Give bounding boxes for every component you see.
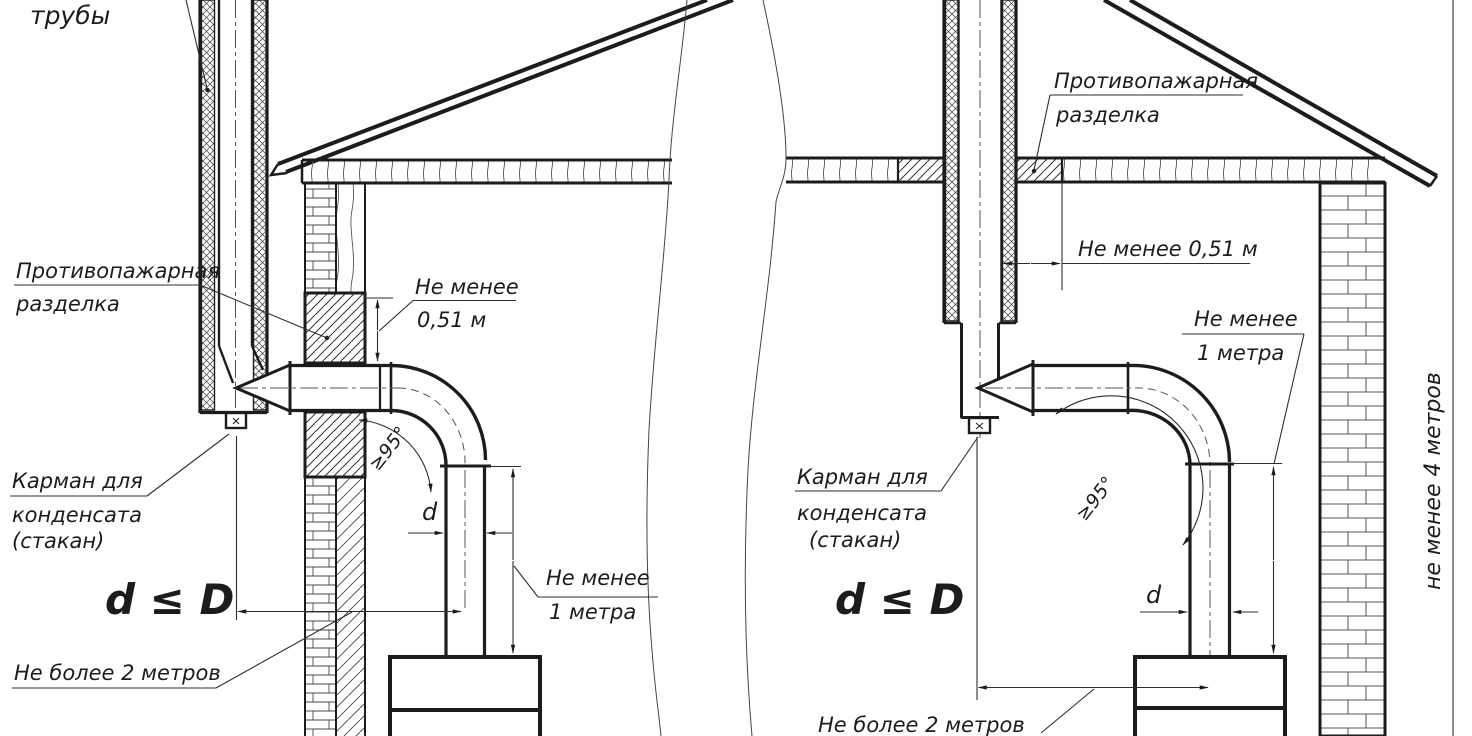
left-diagram: трубы Противопажарная разделка Не менее … (10, 0, 733, 736)
left-fire-break-block (305, 293, 365, 363)
left-min-height-label-2: 0,51 м (417, 308, 486, 332)
right-pocket-label-1: Карман для (797, 465, 928, 489)
right-min-vertical-label-1: Не менее (1194, 307, 1298, 331)
left-roof (271, 0, 733, 175)
left-min-height-label-1: Не менее (415, 275, 519, 299)
left-ceiling (302, 160, 672, 183)
right-max-run-label: Не более 2 метров (818, 713, 1025, 736)
right-wall (1320, 183, 1385, 736)
right-diameter-label: d (1146, 581, 1162, 609)
right-fire-break-block-left (898, 158, 944, 182)
left-min-vertical-label-1: Не менее (546, 566, 650, 590)
right-diagram: Противопажарная разделка Не менее 0,51 м… (745, 0, 1453, 736)
right-condensate-pocket (969, 418, 990, 433)
left-fire-break-label-2: разделка (15, 292, 120, 316)
left-pipe-insulation-label: трубы (30, 1, 110, 30)
chimney-installation-diagram: трубы Противопажарная разделка Не менее … (0, 0, 1472, 736)
right-min-distance-label: Не менее 0,51 м (1078, 237, 1258, 261)
left-break-line (647, 0, 687, 736)
left-pocket-label-3: (стакан) (12, 529, 104, 553)
left-fire-break-label-1: Противопажарная (16, 259, 220, 283)
left-boiler (390, 657, 540, 736)
right-connecting-pipe (985, 362, 1234, 697)
right-angle-label: ≥95° (1072, 472, 1120, 525)
left-fire-break-block-lower (305, 412, 365, 477)
right-elbow-inner (1128, 410, 1190, 465)
left-pocket-label-2: конденсата (12, 503, 142, 527)
left-diameter-label: d (422, 498, 438, 526)
left-min-vertical-label-2: 1 метра (549, 600, 636, 624)
right-pocket-label-2: конденсата (797, 501, 927, 525)
left-wall (305, 183, 365, 736)
left-condensate-pocket (226, 413, 246, 428)
right-fire-break-label-2: разделка (1055, 103, 1160, 127)
right-pocket-label-3: (стакан) (809, 528, 901, 552)
right-fire-break-label-1: Противопажарная (1054, 69, 1258, 93)
left-max-run-label: Не более 2 метров (14, 661, 221, 685)
left-chimney (200, 0, 290, 428)
right-min-vertical-label-2: 1 метра (1197, 341, 1284, 365)
right-ceiling (786, 158, 1385, 182)
right-chimney (944, 0, 1033, 440)
right-boiler (1135, 657, 1285, 736)
left-diameter-rule: d ≤ D (105, 575, 234, 624)
right-break-line (745, 0, 786, 736)
right-elbow-outer (1128, 365, 1230, 462)
right-min-height-label: не менее 4 метров (1421, 372, 1446, 590)
left-pocket-label-1: Карман для (12, 469, 143, 493)
left-angle-label: ≥95° (365, 422, 413, 475)
right-fire-break-block-right (1016, 158, 1062, 182)
right-diameter-rule: d ≤ D (835, 575, 964, 624)
